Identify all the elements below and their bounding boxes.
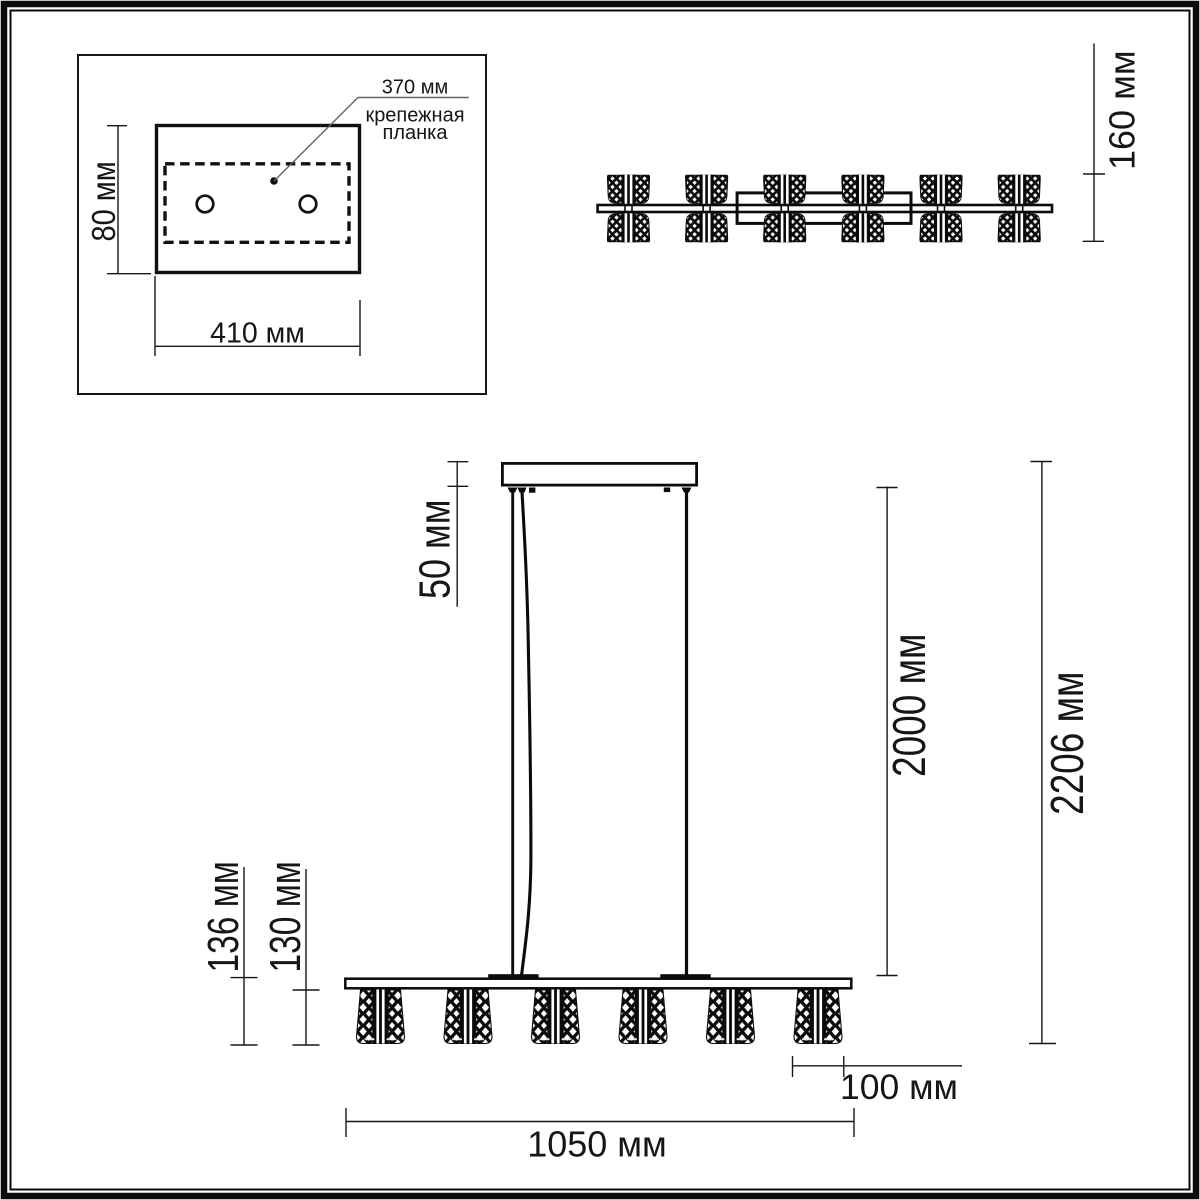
svg-text:160 мм: 160 мм	[1102, 50, 1143, 170]
svg-text:2000 мм: 2000 мм	[883, 634, 935, 777]
svg-text:2206 мм: 2206 мм	[1041, 672, 1093, 815]
svg-text:80 мм: 80 мм	[85, 161, 122, 241]
svg-text:410 мм: 410 мм	[210, 318, 305, 350]
svg-text:136 мм: 136 мм	[200, 861, 248, 972]
svg-text:130 мм: 130 мм	[262, 861, 310, 972]
svg-text:370 мм: 370 мм	[382, 77, 448, 99]
svg-text:50 мм: 50 мм	[411, 499, 459, 599]
svg-text:1050 мм: 1050 мм	[527, 1124, 667, 1165]
svg-text:планка: планка	[383, 122, 449, 144]
svg-text:100 мм: 100 мм	[840, 1067, 958, 1107]
